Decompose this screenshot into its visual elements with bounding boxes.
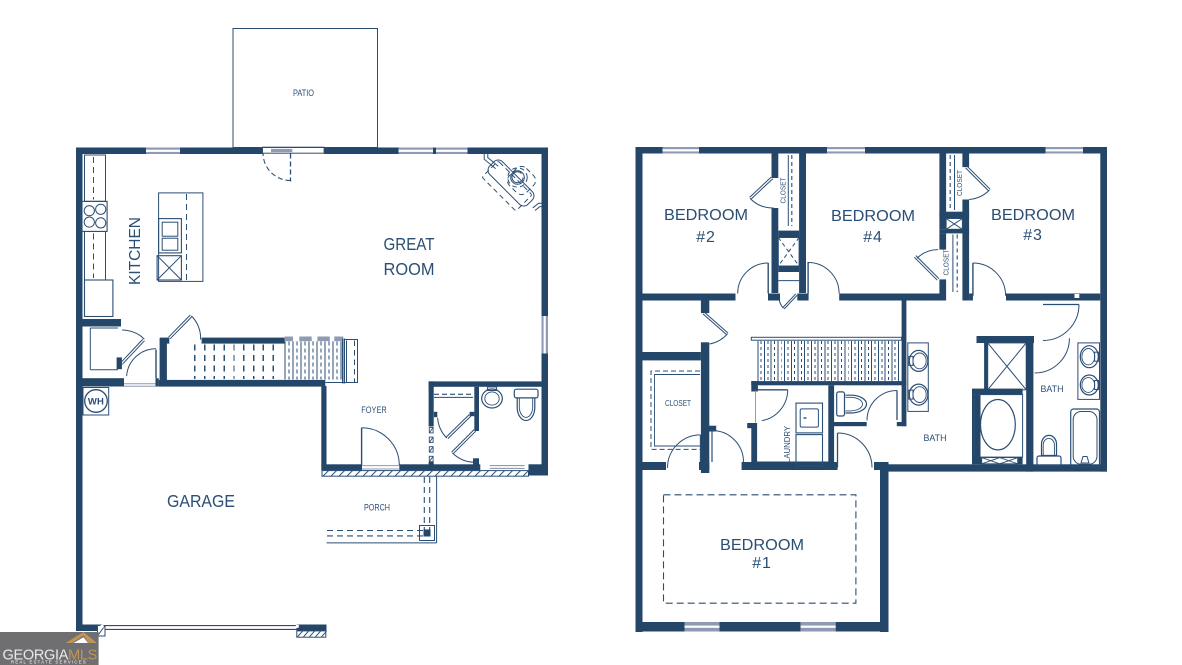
svg-text:#2: #2	[696, 229, 715, 246]
svg-text:GREAT: GREAT	[384, 234, 435, 254]
svg-text:PATIO: PATIO	[293, 88, 314, 99]
svg-text:GARAGE: GARAGE	[167, 491, 235, 511]
svg-text:BEDROOM: BEDROOM	[720, 537, 804, 554]
svg-text:ROOM: ROOM	[384, 259, 435, 279]
svg-text:CLOSET: CLOSET	[665, 398, 691, 408]
svg-text:BEDROOM: BEDROOM	[991, 207, 1075, 224]
svg-text:BEDROOM: BEDROOM	[664, 207, 748, 224]
svg-text:FOYER: FOYER	[361, 405, 387, 416]
svg-text:#4: #4	[863, 229, 882, 246]
svg-text:BEDROOM: BEDROOM	[831, 208, 915, 225]
svg-text:WH: WH	[88, 397, 104, 408]
svg-text:#1: #1	[752, 555, 771, 572]
svg-text:CLOSET: CLOSET	[943, 249, 950, 276]
svg-text:BATH: BATH	[1041, 384, 1064, 395]
svg-text:CLOSET: CLOSET	[957, 169, 964, 196]
svg-text:#3: #3	[1023, 227, 1042, 244]
svg-text:PORCH: PORCH	[364, 503, 390, 514]
svg-text:REAL ESTATE SERVICES: REAL ESTATE SERVICES	[11, 660, 87, 665]
svg-text:LAUNDRY: LAUNDRY	[782, 426, 792, 463]
svg-text:BATH: BATH	[924, 433, 947, 444]
svg-text:KITCHEN: KITCHEN	[127, 217, 144, 285]
svg-text:CLOSET: CLOSET	[780, 177, 787, 204]
